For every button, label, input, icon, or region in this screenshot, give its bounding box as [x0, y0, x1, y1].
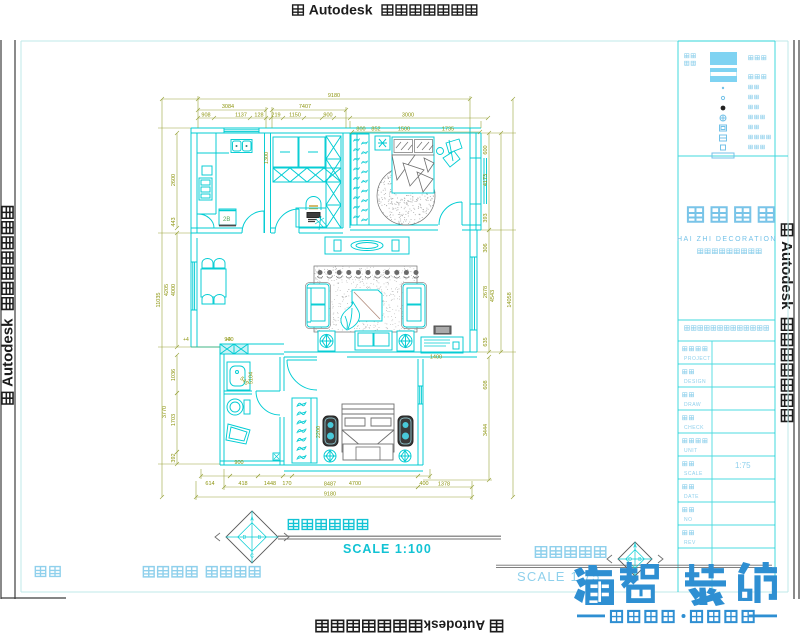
svg-text:614: 614 — [205, 481, 214, 487]
svg-text:3444: 3444 — [483, 424, 489, 436]
svg-text:1300: 1300 — [264, 152, 270, 164]
svg-text:1400: 1400 — [430, 355, 442, 361]
svg-text:635: 635 — [483, 337, 489, 346]
svg-text:1378: 1378 — [438, 482, 450, 488]
svg-text:7407: 7407 — [299, 104, 311, 110]
svg-text:392: 392 — [171, 453, 177, 462]
svg-text:Autodesk: Autodesk — [778, 241, 795, 310]
svg-text:393: 393 — [483, 213, 489, 222]
svg-text:8487: 8487 — [324, 482, 336, 488]
svg-text:UNIT: UNIT — [684, 448, 698, 454]
svg-text:DESIGN: DESIGN — [684, 379, 706, 385]
svg-text:14058: 14058 — [507, 292, 513, 307]
svg-text:2B: 2B — [223, 217, 230, 223]
svg-text:4700: 4700 — [349, 481, 361, 487]
svg-text:DRAW: DRAW — [684, 402, 701, 408]
svg-text:Autodesk: Autodesk — [423, 618, 485, 633]
svg-text:1036: 1036 — [171, 369, 177, 381]
svg-text:5104: 5104 — [249, 372, 255, 384]
svg-text:SCALE 1:100: SCALE 1:100 — [343, 542, 432, 556]
svg-text:Autodesk: Autodesk — [0, 318, 17, 387]
svg-text:3084: 3084 — [222, 104, 234, 110]
svg-text:1735: 1735 — [442, 127, 454, 133]
svg-text:900: 900 — [234, 460, 243, 466]
svg-text:9180: 9180 — [324, 492, 336, 498]
svg-text:1448: 1448 — [264, 481, 276, 487]
svg-text:170: 170 — [282, 481, 291, 487]
svg-text:2600: 2600 — [171, 174, 177, 186]
svg-text:1500: 1500 — [398, 127, 410, 133]
svg-text:2200: 2200 — [316, 426, 322, 438]
svg-text:3770: 3770 — [162, 406, 168, 418]
svg-text:+4: +4 — [183, 337, 189, 343]
svg-text:+4: +4 — [225, 337, 231, 343]
svg-text:PROJECT: PROJECT — [684, 356, 711, 362]
svg-text:4000: 4000 — [171, 284, 177, 296]
svg-text:306: 306 — [483, 243, 489, 252]
svg-text:852: 852 — [371, 127, 380, 133]
svg-text:2678: 2678 — [483, 286, 489, 298]
svg-text:CHECK: CHECK — [684, 425, 704, 431]
svg-text:128: 128 — [254, 113, 263, 119]
svg-text:4543: 4543 — [490, 290, 496, 302]
svg-text:9180: 9180 — [328, 93, 340, 99]
svg-text:Autodesk: Autodesk — [309, 2, 373, 18]
svg-text:418: 418 — [238, 481, 247, 487]
svg-text:900: 900 — [323, 113, 332, 119]
svg-text:400: 400 — [419, 481, 428, 487]
svg-text:REV: REV — [684, 540, 696, 546]
svg-text:1150: 1150 — [289, 113, 301, 119]
svg-text:219: 219 — [271, 113, 280, 119]
svg-text:600: 600 — [483, 145, 489, 154]
svg-text:608: 608 — [483, 380, 489, 389]
svg-text:11035: 11035 — [156, 293, 162, 308]
svg-text:800: 800 — [356, 127, 365, 133]
svg-text:1137: 1137 — [235, 113, 247, 119]
svg-text:3000: 3000 — [402, 113, 414, 119]
svg-text:DATE: DATE — [684, 494, 699, 500]
svg-text:908: 908 — [201, 113, 210, 119]
svg-text:C: C — [250, 553, 254, 559]
svg-text:4205: 4205 — [164, 284, 170, 296]
svg-text:NO: NO — [684, 517, 693, 523]
svg-text:HAI ZHI DECORATION: HAI ZHI DECORATION — [677, 236, 777, 243]
svg-text:1703: 1703 — [171, 414, 177, 426]
svg-text:443: 443 — [171, 217, 177, 226]
svg-text:SCALE: SCALE — [684, 471, 703, 477]
svg-text:D: D — [243, 535, 247, 541]
svg-text:4173: 4173 — [483, 174, 489, 186]
svg-text:1:75: 1:75 — [735, 461, 751, 470]
